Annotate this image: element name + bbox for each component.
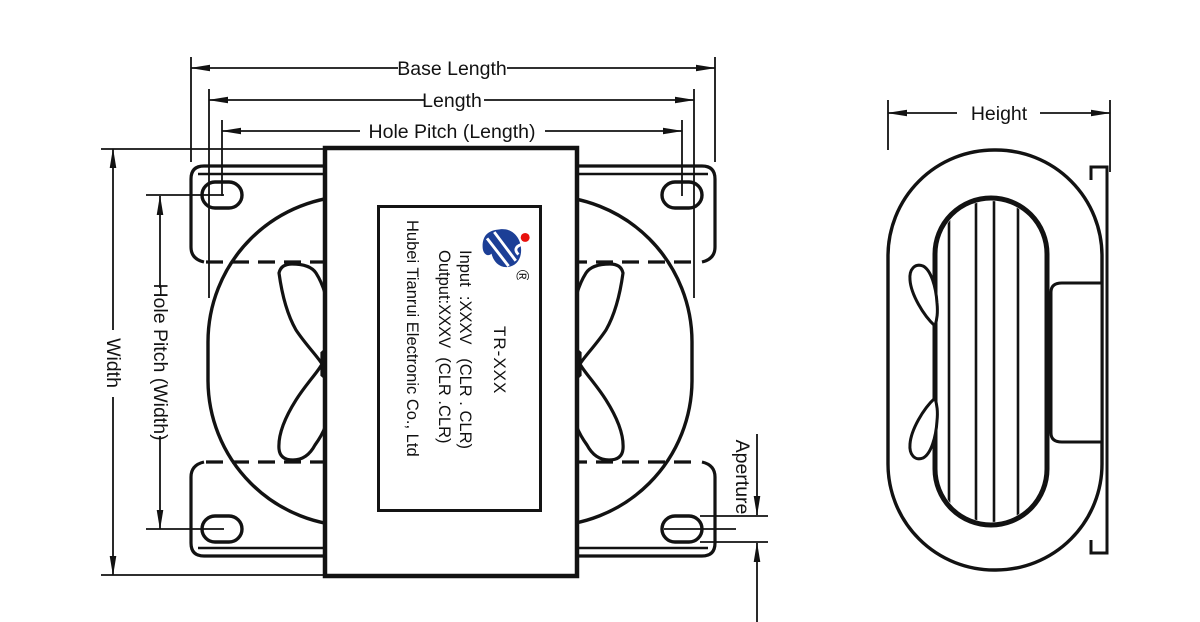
label-header-row: ® TR-XXX (476, 220, 534, 501)
line-art: Base Length Length Hole Pitch (Length) W… (0, 0, 1200, 622)
dim-label-height: Height (971, 103, 1028, 125)
dim-label-aperture: Aperture (731, 440, 753, 515)
dim-label-length: Length (422, 90, 482, 112)
dim-label-base-length: Base Length (397, 58, 507, 80)
dim-hole-pitch-width: Hole Pitch (Width) (149, 196, 171, 529)
dim-aperture: Aperture (731, 434, 757, 622)
dim-label-hole-pitch-width: Hole Pitch (Width) (149, 283, 171, 440)
brand-logo-icon: ® (479, 220, 531, 280)
terminal-block (1051, 283, 1102, 442)
dim-label-hole-pitch-length: Hole Pitch (Length) (369, 121, 536, 143)
model-number: TR-XXX (489, 326, 509, 394)
product-label: ® TR-XXX Input :XXXV (CLR . CLR) Output:… (377, 205, 542, 512)
registered-mark: ® (513, 270, 531, 280)
label-company-line: Hubei Tianrui Electronic Co., Ltd (401, 220, 422, 501)
dim-hole-pitch-length: Hole Pitch (Length) (222, 121, 682, 143)
drawing-canvas: Base Length Length Hole Pitch (Length) W… (0, 0, 1200, 622)
side-view (888, 150, 1107, 570)
label-input-line: Input :XXXV (CLR . CLR) (454, 220, 475, 501)
logo-red-dot (521, 233, 530, 242)
core-stack-outline (935, 198, 1047, 525)
dim-label-width: Width (102, 338, 124, 388)
label-output-line: Output:XXXV (CLR .CLR) (433, 220, 454, 501)
